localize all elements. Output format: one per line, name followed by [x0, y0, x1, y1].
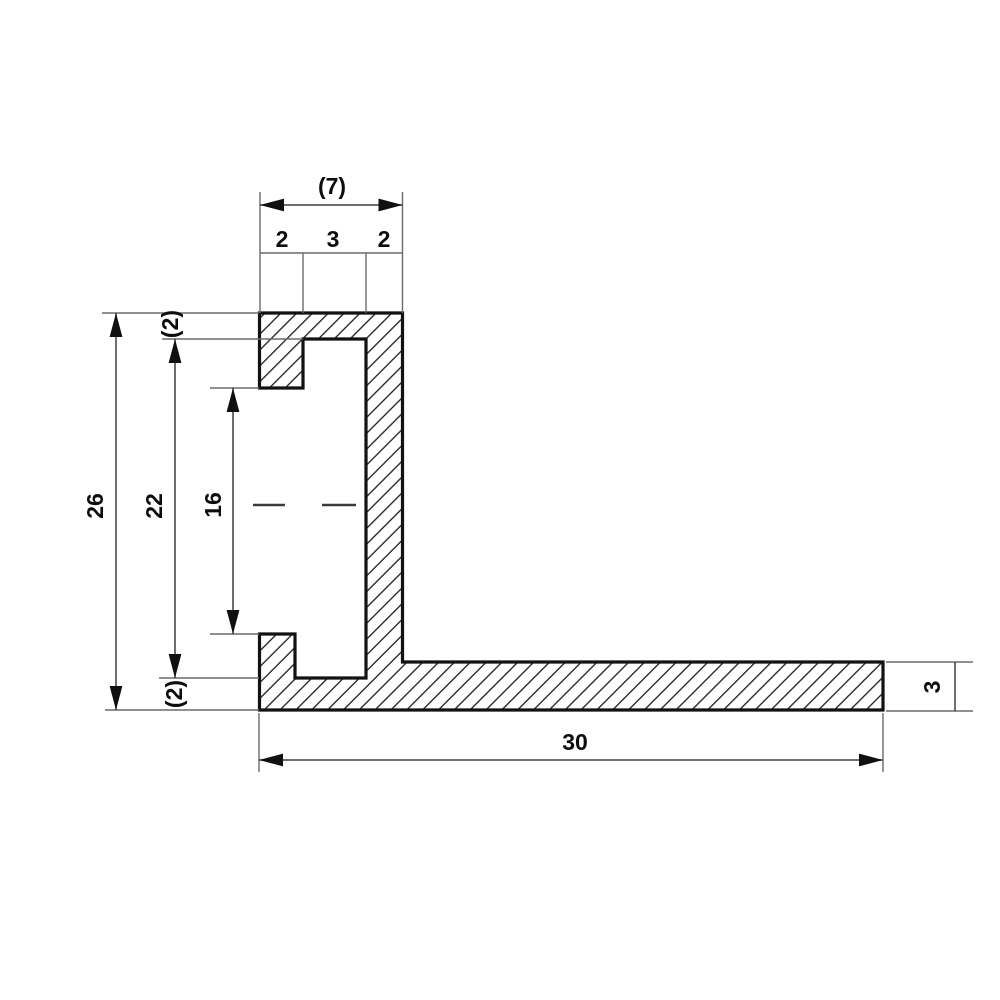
dimension-bottom-width: 30	[259, 713, 883, 772]
dimension-flange-thickness: 3	[886, 662, 973, 711]
dim-label-chain-left: 2	[276, 226, 289, 252]
arrowhead-down	[169, 654, 182, 678]
arrowhead-right	[379, 199, 403, 212]
arrowhead-right	[859, 754, 883, 767]
arrowhead-down	[110, 686, 123, 710]
dim-label-groove-height: 16	[200, 492, 226, 518]
arrowhead-up	[227, 388, 240, 412]
arrowhead-left	[260, 199, 284, 212]
arrowhead-up	[110, 313, 123, 337]
dimension-groove-height: 16	[200, 388, 259, 634]
technical-drawing: (7) 2 3 2 26 22 16 (2) (2)	[0, 0, 1000, 1000]
arrowhead-left	[259, 754, 283, 767]
dim-label-overall-height: 26	[82, 493, 108, 519]
dimension-chain-232: 2 3 2	[260, 226, 403, 313]
dim-label-flange-thickness: 3	[919, 681, 945, 694]
dim-label-chain-right: 2	[378, 226, 391, 252]
drawing-canvas: (7) 2 3 2 26 22 16 (2) (2)	[0, 0, 1000, 1000]
dim-label-inner-height: 22	[141, 493, 167, 519]
dim-label-chain-middle: 3	[327, 226, 340, 252]
arrowhead-up	[169, 339, 182, 363]
dim-label-lip-bottom: (2)	[161, 680, 187, 708]
arrowhead-down	[227, 610, 240, 634]
dim-label-top-width: (7)	[318, 173, 346, 199]
dim-label-bottom-width: 30	[562, 729, 588, 755]
profile-cross-section	[260, 313, 884, 710]
dim-label-lip-top: (2)	[157, 310, 183, 338]
